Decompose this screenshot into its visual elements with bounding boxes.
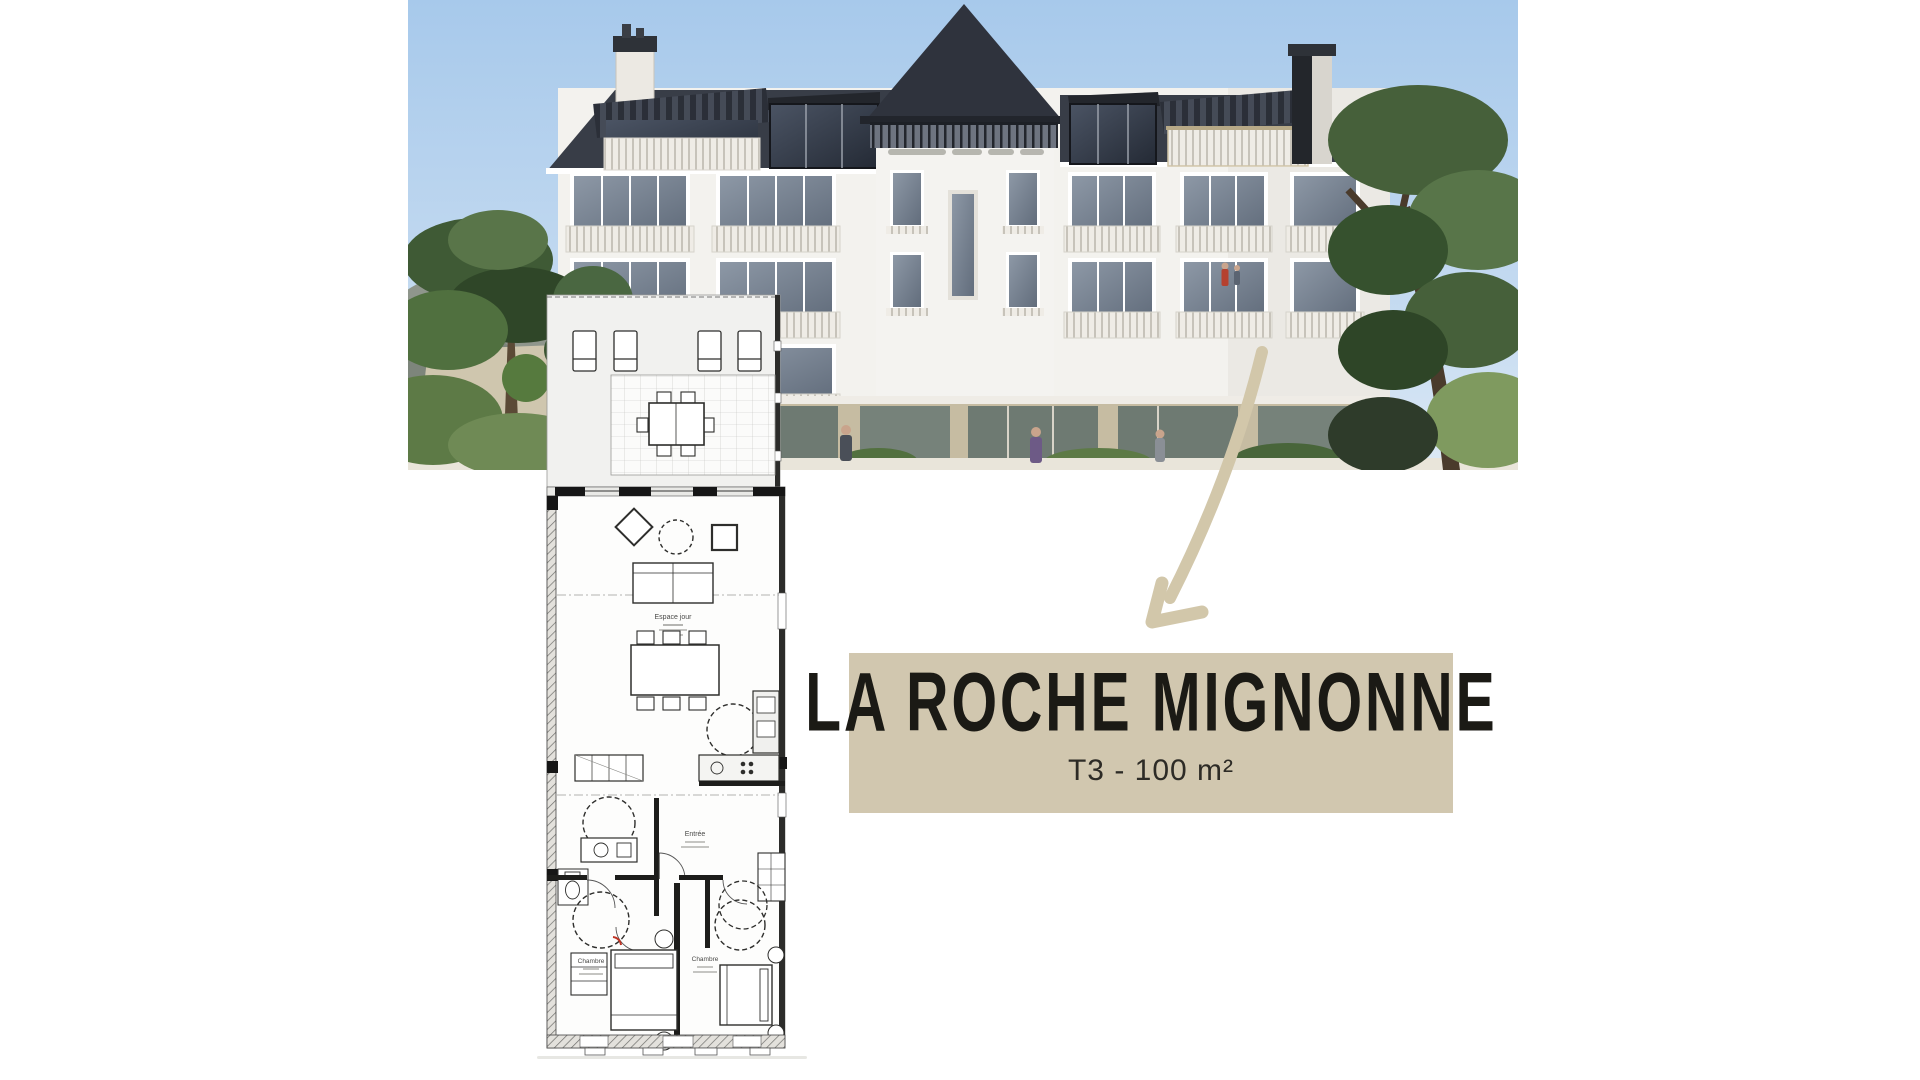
- floor-plan: Espace jour: [545, 293, 790, 1063]
- curved-arrow-icon: [1120, 340, 1300, 640]
- project-title: LA ROCHE MIGNONNE: [805, 660, 1497, 743]
- arrow-shaft: [1170, 352, 1262, 598]
- wall-top: [547, 487, 785, 496]
- roof-glass-dormer-left: [768, 92, 880, 168]
- wall-left: [547, 496, 558, 1048]
- trees-right: [1328, 85, 1518, 470]
- living-room-label: Espace jour: [655, 614, 693, 621]
- entry-label: Entrée: [685, 831, 706, 838]
- wc: [558, 869, 588, 905]
- wall-bottom: [547, 1035, 785, 1055]
- plan-terrace: [547, 295, 781, 487]
- plan-apartment: Espace jour: [547, 487, 787, 1055]
- project-banner: LA ROCHE MIGNONNE T3 - 100 m²: [849, 653, 1453, 813]
- roof-glass-dormer-right: [1068, 92, 1160, 164]
- real-estate-sheet: Espace jour: [0, 0, 1920, 1080]
- bedroom-2-label: Chambre: [692, 956, 719, 963]
- apartment-type-label: T3 - 100 m²: [1068, 754, 1234, 788]
- bedroom-1-label: Chambre: [578, 958, 605, 965]
- closet: [575, 755, 643, 781]
- dining-table: [631, 631, 719, 710]
